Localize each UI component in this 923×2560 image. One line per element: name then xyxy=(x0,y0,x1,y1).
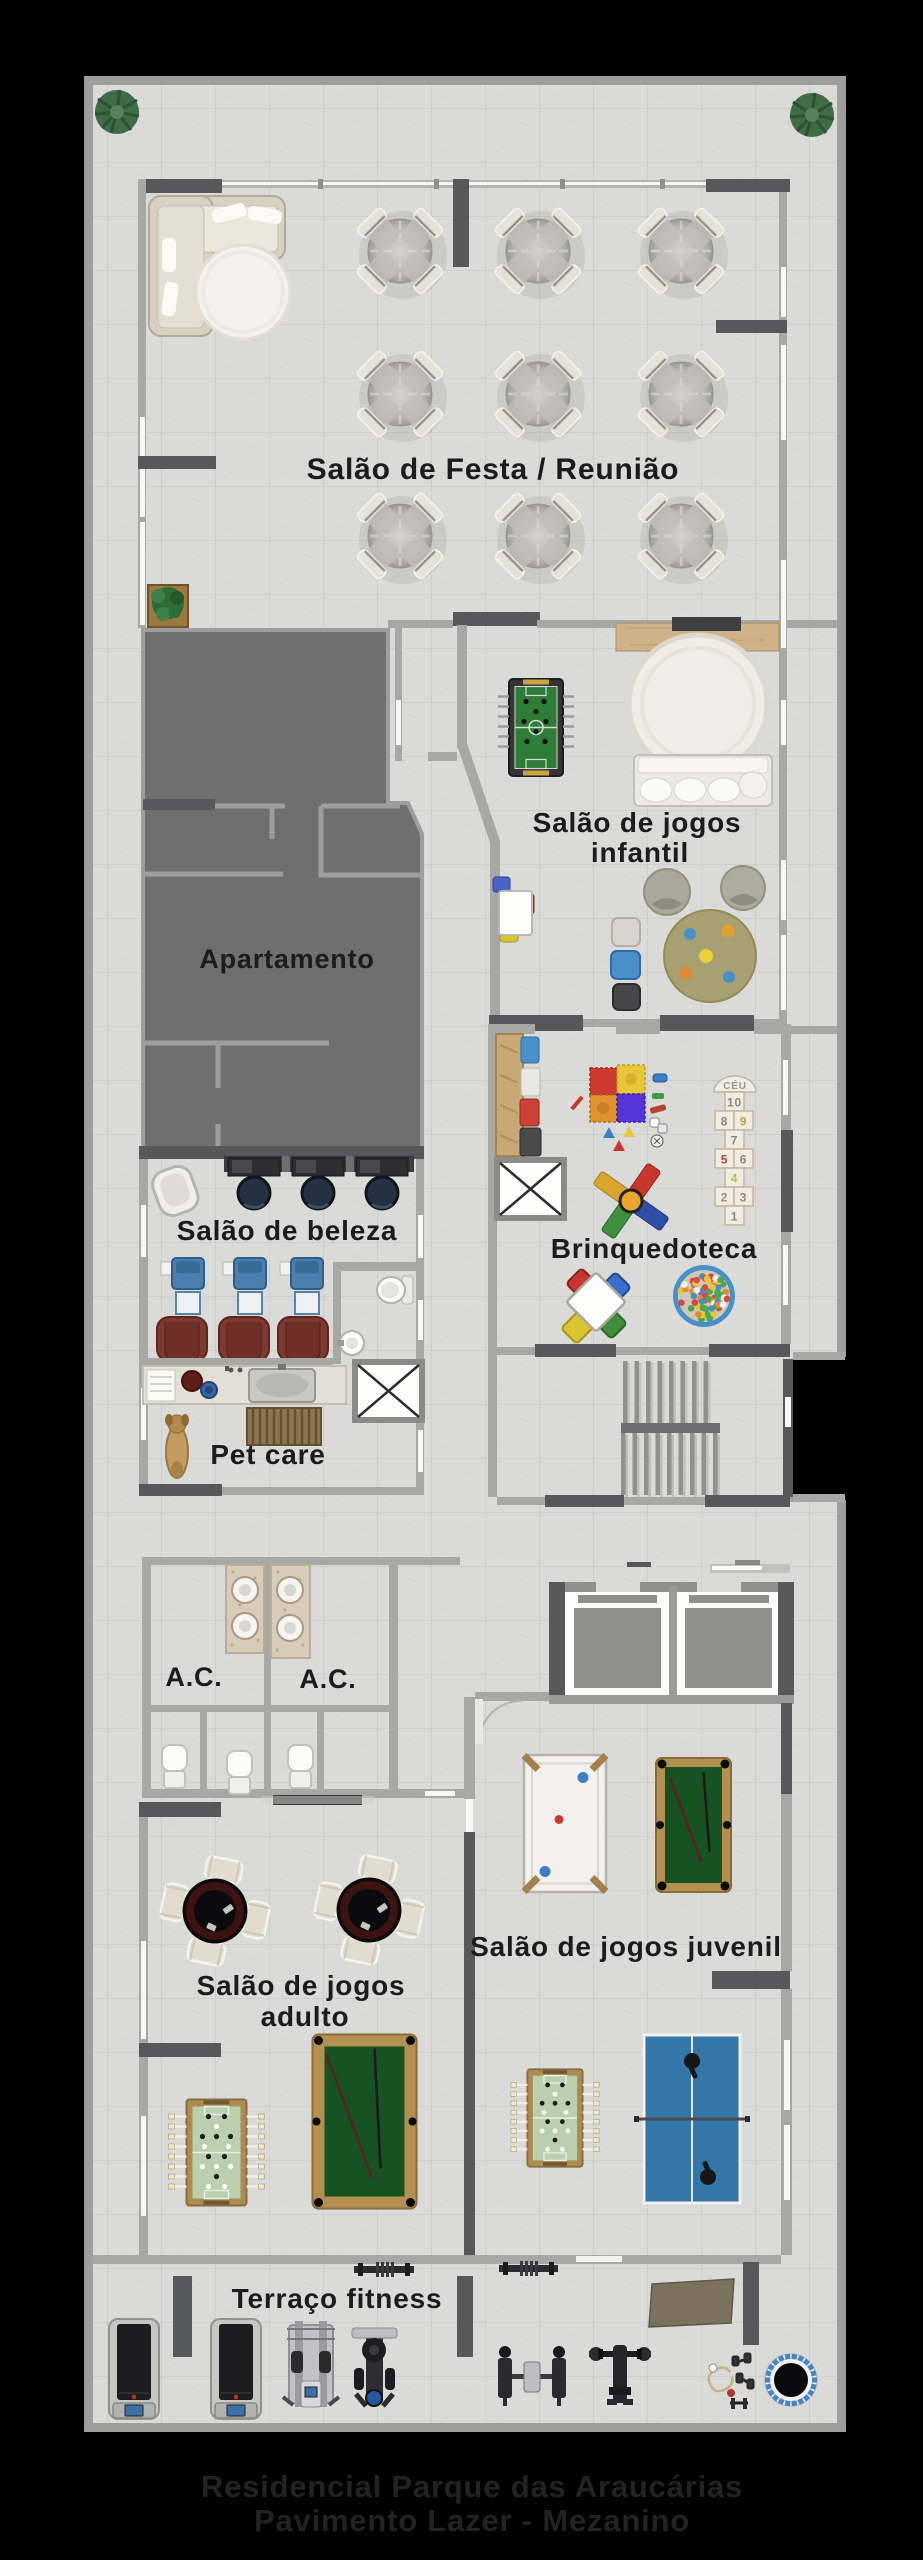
svg-text:Salão de jogos: Salão de jogos xyxy=(533,807,742,838)
svg-text:Brinquedoteca: Brinquedoteca xyxy=(551,1233,757,1264)
svg-text:Salão de jogos: Salão de jogos xyxy=(197,1970,406,2001)
svg-text:A.C.: A.C. xyxy=(299,1664,356,1694)
svg-text:Pavimento Lazer - Mezanino: Pavimento Lazer - Mezanino xyxy=(254,2503,690,2538)
svg-text:2: 2 xyxy=(721,1191,728,1205)
svg-text:Terraço fitness: Terraço fitness xyxy=(232,2283,443,2314)
svg-text:3: 3 xyxy=(740,1191,747,1205)
svg-text:6: 6 xyxy=(740,1153,747,1167)
svg-text:5: 5 xyxy=(721,1153,728,1167)
svg-text:Residencial Parque das Araucár: Residencial Parque das Araucárias xyxy=(201,2469,743,2504)
svg-text:Pet care: Pet care xyxy=(210,1439,325,1470)
svg-text:4: 4 xyxy=(731,1172,738,1186)
svg-text:Salão de Festa / Reunião: Salão de Festa / Reunião xyxy=(307,453,680,486)
svg-text:9: 9 xyxy=(740,1115,747,1129)
svg-text:A.C.: A.C. xyxy=(165,1662,222,1692)
svg-text:Apartamento: Apartamento xyxy=(199,944,374,974)
svg-text:10: 10 xyxy=(727,1096,742,1110)
svg-text:8: 8 xyxy=(721,1115,728,1129)
svg-text:1: 1 xyxy=(731,1210,738,1224)
svg-text:Salão de jogos juvenil: Salão de jogos juvenil xyxy=(470,1931,782,1962)
svg-text:Salão de beleza: Salão de beleza xyxy=(177,1215,398,1246)
svg-text:adulto: adulto xyxy=(261,2001,350,2032)
svg-text:7: 7 xyxy=(731,1134,738,1148)
svg-text:infantil: infantil xyxy=(591,837,689,868)
svg-text:CÉU: CÉU xyxy=(723,1079,747,1092)
